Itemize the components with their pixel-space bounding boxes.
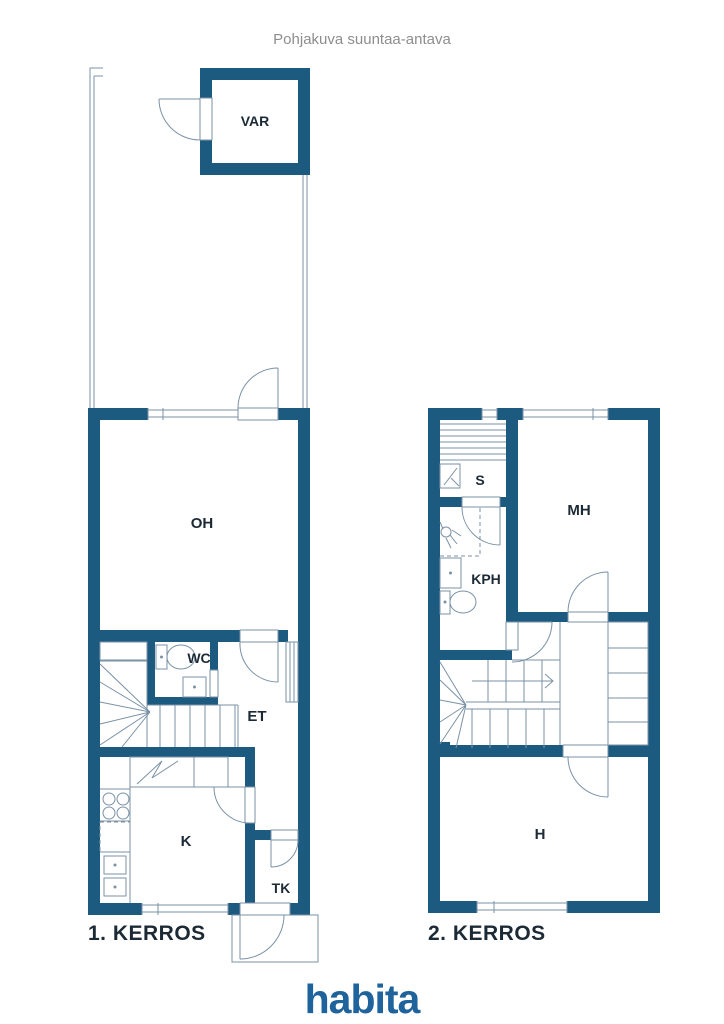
- door-swing-icon: [563, 745, 608, 797]
- wardrobe-icon: [608, 622, 648, 745]
- entrance-porch: [232, 915, 318, 962]
- door-swing-icon: [159, 99, 200, 140]
- yard-boundary: [90, 68, 307, 408]
- room-label-et: ET: [247, 708, 266, 725]
- door-swing-icon: [462, 497, 500, 545]
- sauna-bench-icon: [440, 424, 506, 460]
- door-swing-icon: [506, 622, 552, 662]
- sink-icon: [100, 852, 130, 896]
- room-label-mh: MH: [567, 502, 590, 519]
- fridge-icon: [130, 757, 194, 787]
- sink-icon: [183, 677, 206, 697]
- toilet-icon: [440, 591, 476, 614]
- door-swing-icon: [568, 572, 608, 622]
- floor1-label: 1. KERROS: [88, 922, 206, 945]
- dishwasher-icon: [100, 822, 130, 852]
- room-label-kph: KPH: [471, 571, 501, 587]
- door-swing-icon: [240, 903, 290, 959]
- window-icon: [142, 903, 228, 915]
- floor1-interior-walls: [88, 630, 288, 903]
- door-jamb: [210, 670, 218, 697]
- window-icon: [523, 408, 608, 420]
- window-icon: [482, 408, 497, 420]
- room-label-wc: WC: [187, 650, 210, 666]
- floor2-label: 2. KERROS: [428, 922, 546, 945]
- stove-icon: [100, 789, 130, 821]
- window-icon: [477, 901, 567, 913]
- floor2-plan: S MH KPH H 2. KERROS: [428, 408, 660, 945]
- room-label-oh: OH: [191, 515, 214, 532]
- cabinet: [194, 757, 228, 787]
- door-swing-icon: [271, 830, 298, 867]
- sauna-heater-icon: [440, 464, 460, 488]
- floor-plan-svg: Pohjakuva suuntaa-antava VAR: [0, 0, 724, 1024]
- door-swing-icon: [214, 787, 255, 823]
- shower-icon: [440, 508, 480, 556]
- arrow-right-icon: [472, 674, 553, 688]
- floor-plan-page: Pohjakuva suuntaa-antava VAR: [0, 0, 724, 1024]
- door-swing-icon: [240, 630, 278, 682]
- habita-logo: habita: [305, 976, 422, 1022]
- window-icon: [148, 408, 238, 420]
- plan-title: Pohjakuva suuntaa-antava: [273, 31, 451, 48]
- floor1-plan: OH WC ET K TK 1. KERROS: [88, 368, 318, 962]
- room-label-s: S: [475, 472, 484, 488]
- room-label-k: K: [181, 833, 192, 850]
- sink-icon: [440, 558, 461, 588]
- room-label-var: VAR: [241, 113, 270, 129]
- room-label-tk: TK: [272, 880, 291, 896]
- stairs-icon: [440, 622, 560, 748]
- door-jamb: [200, 98, 212, 140]
- door-swing-icon: [238, 368, 278, 420]
- radiator-icon: [286, 642, 298, 702]
- storage-var: VAR: [159, 68, 310, 175]
- room-label-h: H: [535, 826, 546, 843]
- kitchen-counter: [100, 757, 228, 903]
